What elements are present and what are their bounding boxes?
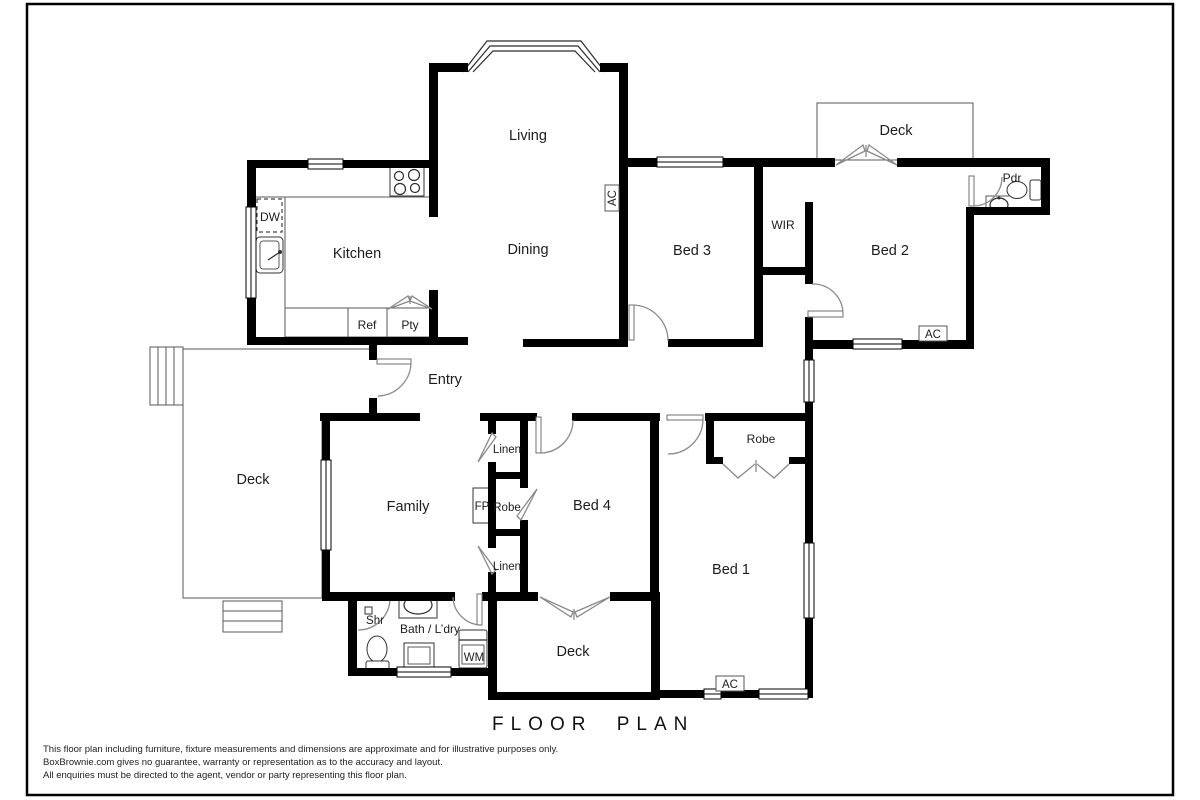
floor-plan-title: FLOOR PLAN [492, 714, 694, 735]
window-bed1-east [804, 543, 814, 618]
bay-window [463, 41, 605, 72]
bed1-robe-bifold-doors [723, 460, 789, 478]
closet-label-robe-hall: Robe [493, 502, 521, 514]
stairs-bottom-left [223, 601, 282, 632]
room-label-deck-bottom: Deck [556, 644, 590, 660]
room-label-bath: Bath / L’dry [400, 622, 460, 636]
room-label-wir: WIR [771, 218, 795, 232]
fixture-label-fp: FP [475, 501, 490, 513]
fixture-label-ref: Ref [358, 318, 377, 332]
ac-label-bed2: AC [925, 329, 941, 341]
room-label-pdr: Pdr [1003, 171, 1022, 185]
room-label-family: Family [387, 499, 430, 515]
labels-layer: Living Dining Kitchen Bed 3 WIR Bed 2 Pd… [236, 123, 1021, 664]
window-bed1-bottom-right [759, 689, 808, 699]
toilet-icon [366, 636, 389, 670]
window-bath-bottom [397, 667, 451, 677]
room-label-entry: Entry [428, 372, 463, 388]
bed1-door [667, 415, 703, 454]
window-bed3-top [657, 157, 723, 167]
room-label-bed1: Bed 1 [712, 562, 750, 578]
stairs-top-left [150, 347, 183, 405]
kitchen-sink [256, 237, 283, 273]
walls-layer [247, 63, 1050, 700]
page-border [27, 4, 1173, 795]
fixture-label-wm: WM [464, 652, 484, 664]
bed4-door [536, 417, 573, 453]
entry-door [377, 359, 411, 396]
fixture-label-dw: DW [260, 210, 281, 224]
floor-plan-svg: AC AC AC Living Dining Kitchen Bed 3 WIR… [0, 0, 1200, 800]
ac-unit-bed2: AC [919, 326, 947, 341]
closet-label-linen-bottom: Linen [493, 561, 521, 573]
doors-layer [377, 145, 1002, 625]
room-label-bed2: Bed 2 [871, 243, 909, 259]
room-label-kitchen: Kitchen [333, 246, 381, 262]
room-label-bed4: Bed 4 [573, 498, 611, 514]
window-hall-east [804, 360, 814, 402]
room-label-deck-left: Deck [236, 472, 270, 488]
window-kitchen-top [308, 159, 343, 169]
ac-label-bed1: AC [722, 679, 738, 691]
window-family-west [321, 460, 331, 550]
ac-unit-dining: AC [605, 185, 619, 211]
stove-cooktop [390, 167, 424, 196]
room-label-bed3: Bed 3 [673, 243, 711, 259]
deck-left-outline [150, 347, 369, 632]
room-label-dining: Dining [507, 242, 548, 258]
floor-plan-page: AC AC AC Living Dining Kitchen Bed 3 WIR… [0, 0, 1200, 800]
shower-head-icon [365, 607, 372, 614]
closet-label-linen-top: Linen [493, 444, 521, 456]
room-label-deck-top: Deck [879, 123, 913, 139]
ac-unit-bed1: AC [716, 676, 744, 691]
room-label-living: Living [509, 128, 547, 144]
fixture-label-pty: Pty [401, 318, 418, 332]
deck-top-french-doors [836, 145, 897, 165]
ac-label-dining: AC [607, 190, 619, 206]
deck-bottom-french-doors [540, 597, 610, 620]
pantry-doors [388, 296, 432, 309]
disclaimer-line-1: This floor plan including furniture, fix… [43, 744, 558, 755]
bed2-door [808, 284, 843, 317]
disclaimer: This floor plan including furniture, fix… [43, 744, 558, 781]
bath-door [453, 594, 482, 625]
bed3-door [629, 305, 668, 341]
laundry-tub [404, 643, 434, 668]
disclaimer-line-3: All enquiries must be directed to the ag… [43, 770, 407, 781]
fixture-label-shr: Shr [366, 615, 384, 627]
closet-label-robe-bed1: Robe [747, 432, 776, 446]
window-kitchen-left [246, 207, 256, 298]
disclaimer-line-2: BoxBrownie.com gives no guarantee, warra… [43, 757, 443, 768]
window-bed2-bottom [853, 339, 902, 349]
